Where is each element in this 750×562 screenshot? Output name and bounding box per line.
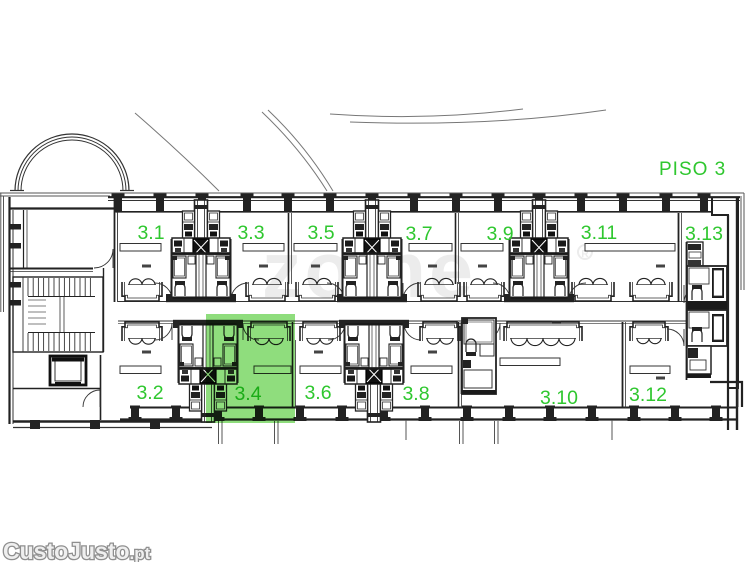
svg-text:3.7: 3.7 <box>405 223 432 245</box>
svg-text:3.6: 3.6 <box>304 382 331 404</box>
svg-text:3.8: 3.8 <box>402 383 429 405</box>
svg-text:3.13: 3.13 <box>685 223 723 245</box>
svg-text:3.12: 3.12 <box>629 384 667 406</box>
svg-text:3.10: 3.10 <box>540 387 578 409</box>
svg-text:CustoJusto.pt: CustoJusto.pt <box>3 538 151 562</box>
svg-text:3.9: 3.9 <box>486 223 513 245</box>
svg-text:3.5: 3.5 <box>307 222 334 244</box>
svg-text:3.11: 3.11 <box>581 222 618 244</box>
svg-text:3.1: 3.1 <box>137 222 164 244</box>
svg-text:3.3: 3.3 <box>237 222 264 244</box>
svg-text:3.2: 3.2 <box>136 382 163 404</box>
svg-text:PISO 3: PISO 3 <box>659 159 726 180</box>
